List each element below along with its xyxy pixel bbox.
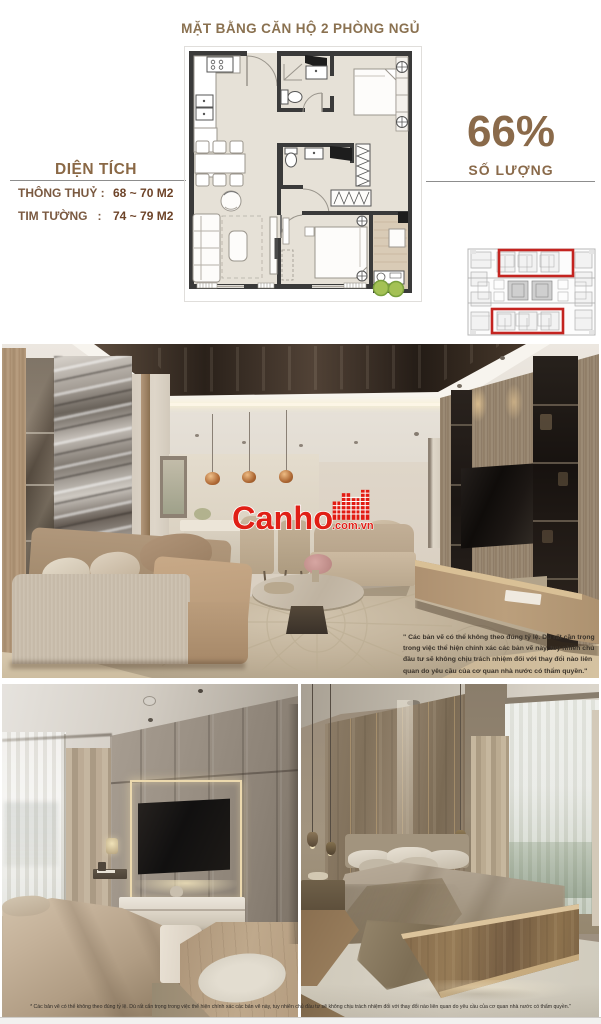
- svg-text:.com.vn: .com.vn: [332, 520, 374, 532]
- svg-text:Canho: Canho: [232, 500, 333, 536]
